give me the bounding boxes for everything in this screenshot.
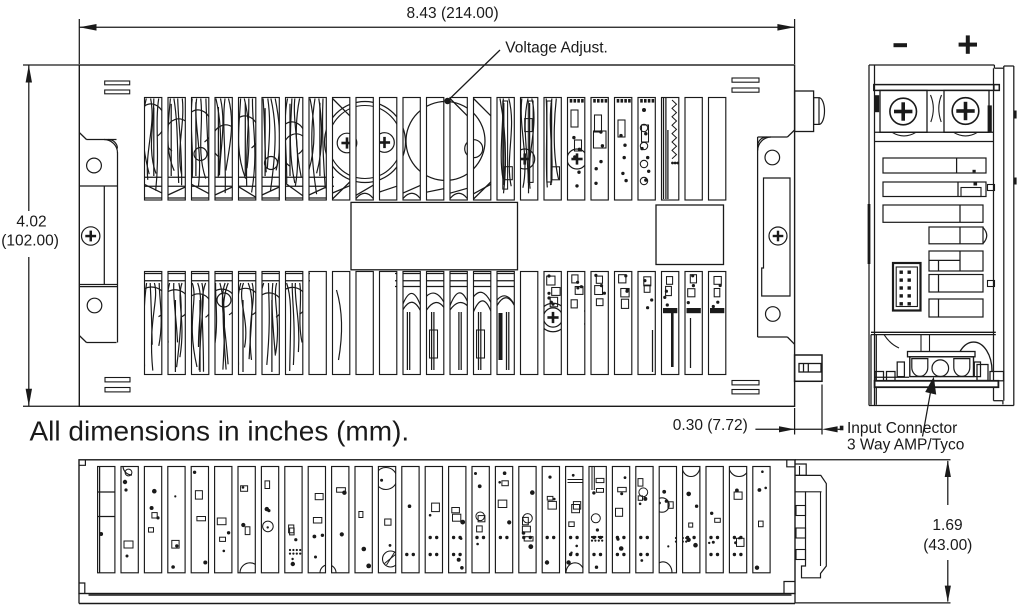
svg-text:3 Way AMP/Tyco: 3 Way AMP/Tyco — [847, 437, 964, 454]
svg-text:Input Connector: Input Connector — [847, 420, 957, 437]
svg-text:All dimensions in inches (mm).: All dimensions in inches (mm). — [30, 416, 410, 447]
svg-text:(102.00): (102.00) — [1, 232, 59, 249]
svg-text:Voltage Adjust.: Voltage Adjust. — [505, 40, 608, 57]
svg-text:4.02: 4.02 — [16, 213, 46, 230]
svg-text:8.43 (214.00): 8.43 (214.00) — [407, 5, 499, 22]
svg-text:1.69: 1.69 — [932, 517, 962, 534]
svg-text:0.30 (7.72): 0.30 (7.72) — [673, 417, 748, 434]
svg-text:(43.00): (43.00) — [923, 537, 972, 554]
